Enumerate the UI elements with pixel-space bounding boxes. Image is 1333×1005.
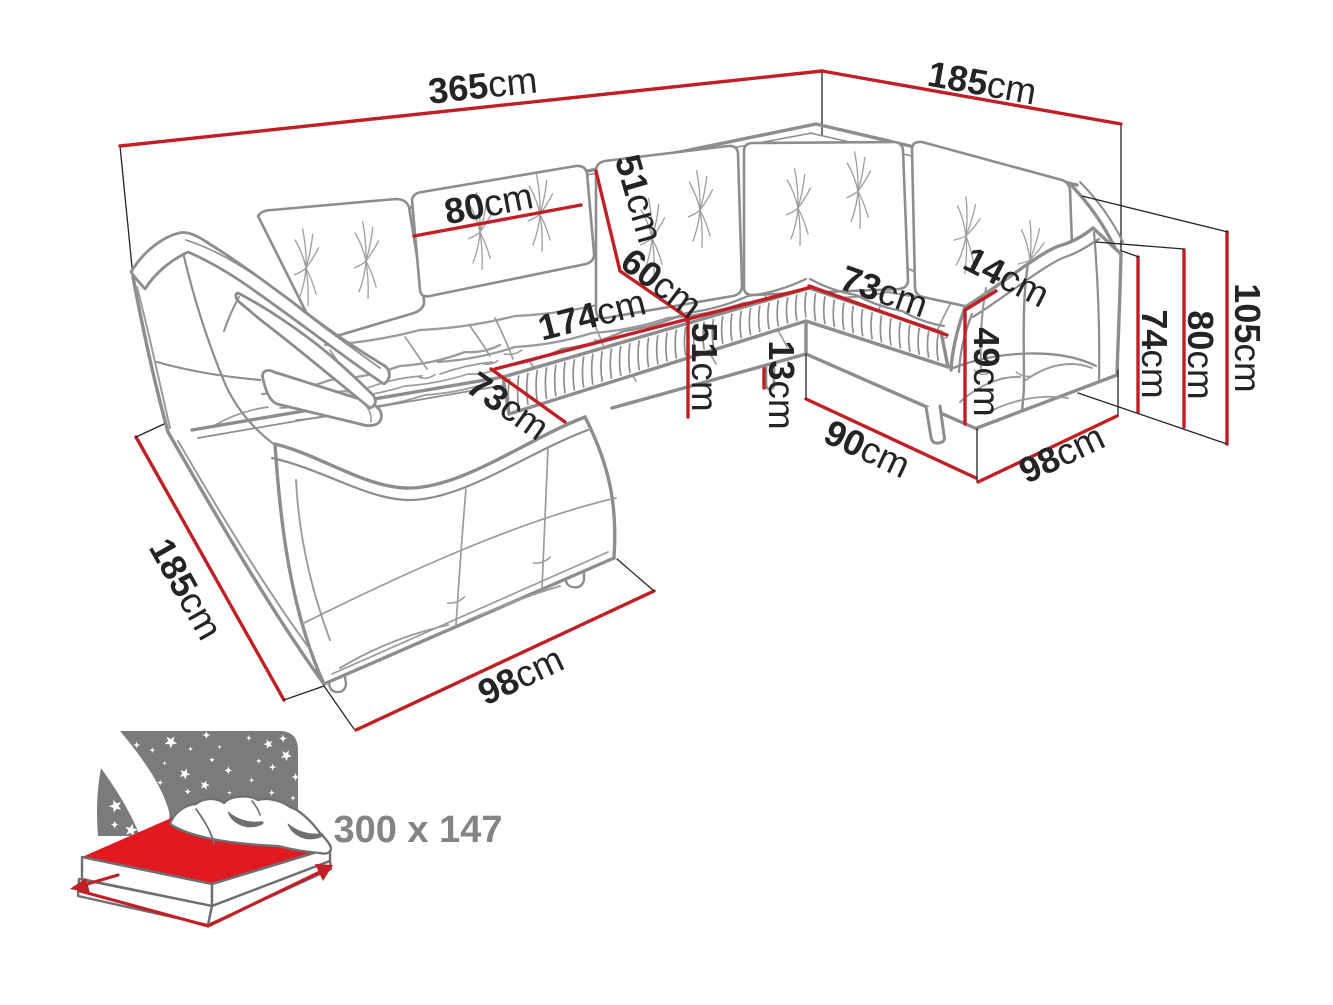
svg-text:80cm: 80cm: [1180, 310, 1221, 399]
svg-text:300 x 147: 300 x 147: [333, 809, 502, 851]
svg-text:51cm: 51cm: [684, 322, 725, 411]
svg-text:13cm: 13cm: [761, 340, 802, 429]
svg-text:105cm: 105cm: [1227, 283, 1268, 392]
svg-text:49cm: 49cm: [966, 327, 1007, 416]
svg-text:74cm: 74cm: [1134, 309, 1175, 398]
